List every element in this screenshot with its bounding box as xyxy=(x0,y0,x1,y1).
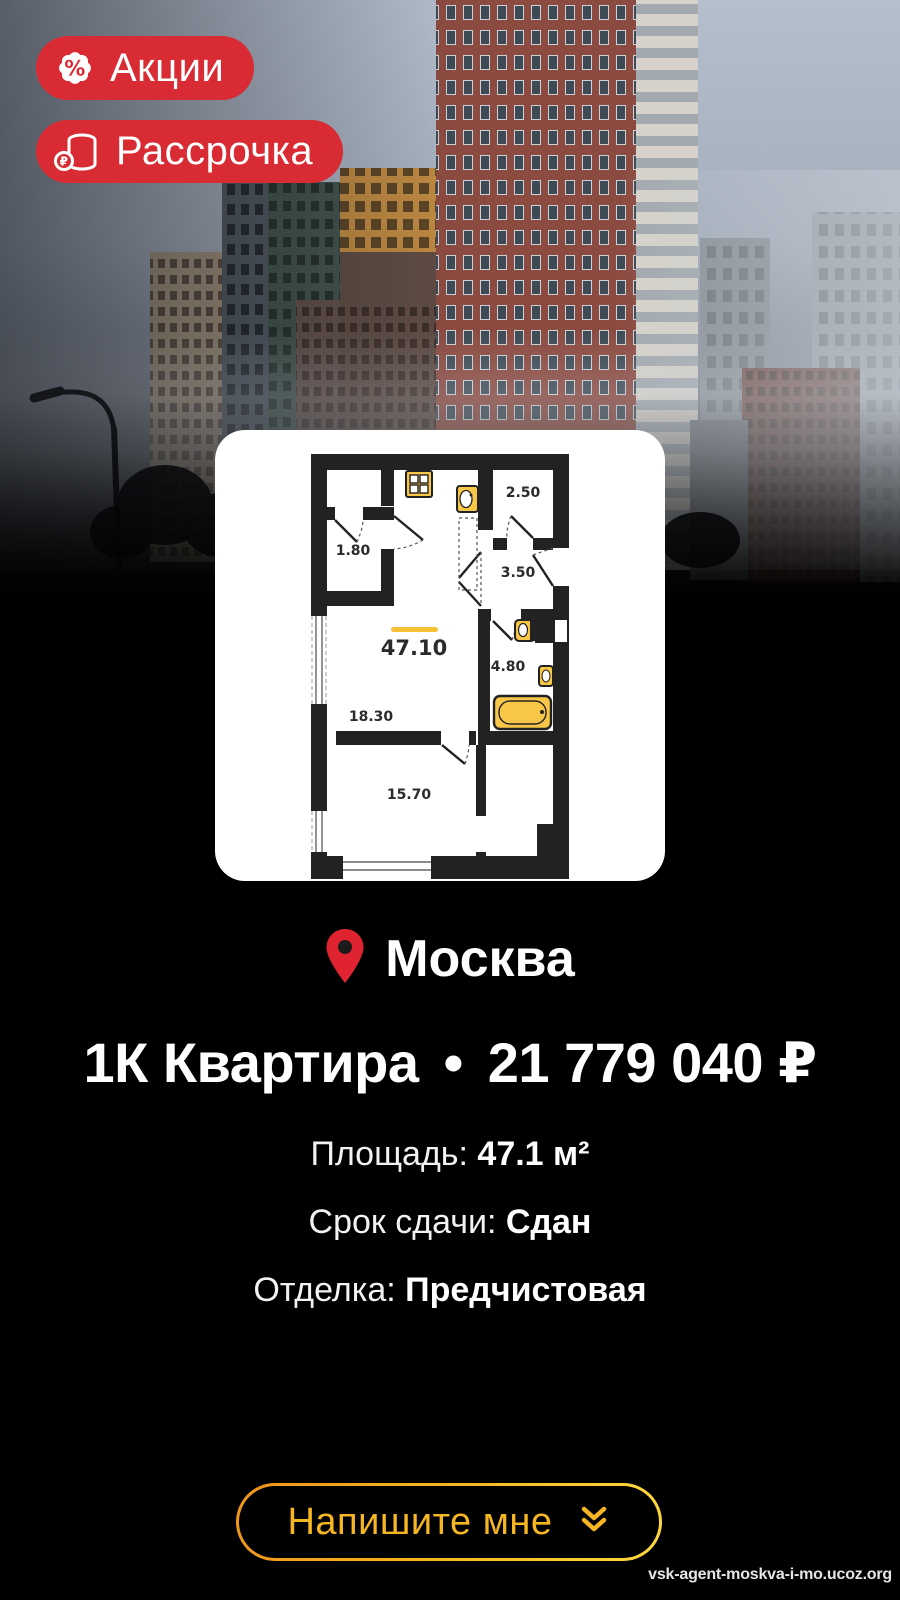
room-area-label: 18.30 xyxy=(349,709,394,725)
percent-badge-icon: % xyxy=(54,47,96,89)
detail-area: Площадь: 47.1 м² xyxy=(0,1135,900,1174)
watermark-url: vsk-agent-moskva-i-mo.ucoz.org xyxy=(648,1566,892,1584)
svg-text:₽: ₽ xyxy=(60,154,69,168)
badge-label: Акции xyxy=(110,46,224,91)
detail-value: 47.1 м² xyxy=(477,1135,589,1173)
detail-label: Отделка: xyxy=(253,1271,405,1309)
title-bullet: • xyxy=(444,1031,463,1094)
floorplan-drawing: 47.10 1.80 2.50 3.50 4.80 18.30 15.70 xyxy=(311,454,569,879)
room-area-label: 4.80 xyxy=(491,659,526,675)
toilet-icon xyxy=(515,620,535,641)
detail-completion: Срок сдачи: Сдан xyxy=(0,1203,900,1242)
location-pin-icon xyxy=(325,928,365,989)
detail-value: Сдан xyxy=(506,1203,592,1241)
kitchen-sink-icon xyxy=(457,486,478,512)
floorplan-card: 47.10 1.80 2.50 3.50 4.80 18.30 15.70 xyxy=(215,430,665,881)
walls xyxy=(311,454,569,879)
room-area-label: 1.80 xyxy=(336,543,371,559)
city-name: Москва xyxy=(385,929,575,989)
detail-finish: Отделка: Предчистовая xyxy=(0,1271,900,1310)
shaft-niche xyxy=(555,620,567,642)
svg-text:%: % xyxy=(64,57,86,81)
cta-label: Напишите мне xyxy=(287,1501,552,1544)
badge-promotions[interactable]: % Акции xyxy=(36,36,254,100)
location-row: Москва xyxy=(0,928,900,989)
ruble-coins-icon: ₽ xyxy=(54,132,102,172)
detail-label: Срок сдачи: xyxy=(309,1203,506,1241)
badge-label: Рассрочка xyxy=(116,129,313,174)
room-area-label: 15.70 xyxy=(387,787,432,803)
stove-icon xyxy=(406,471,432,497)
listing-type: 1К Квартира xyxy=(83,1031,418,1094)
double-chevron-down-icon xyxy=(577,1503,611,1542)
room-area-label: 2.50 xyxy=(506,485,541,501)
total-area-underline xyxy=(391,627,438,632)
write-me-button[interactable]: Напишите мне xyxy=(236,1483,662,1561)
listing-title: 1К Квартира • 21 779 040 ₽ xyxy=(0,1030,900,1096)
total-area-label: 47.10 xyxy=(381,636,447,660)
bath-sink-icon xyxy=(539,666,553,686)
room-area-label: 3.50 xyxy=(501,565,536,581)
badge-installment[interactable]: ₽ Рассрочка xyxy=(36,120,343,183)
detail-label: Площадь: xyxy=(311,1135,478,1173)
bathtub-icon xyxy=(494,696,551,729)
listing-price: 21 779 040 ₽ xyxy=(488,1031,817,1094)
detail-value: Предчистовая xyxy=(405,1271,646,1309)
